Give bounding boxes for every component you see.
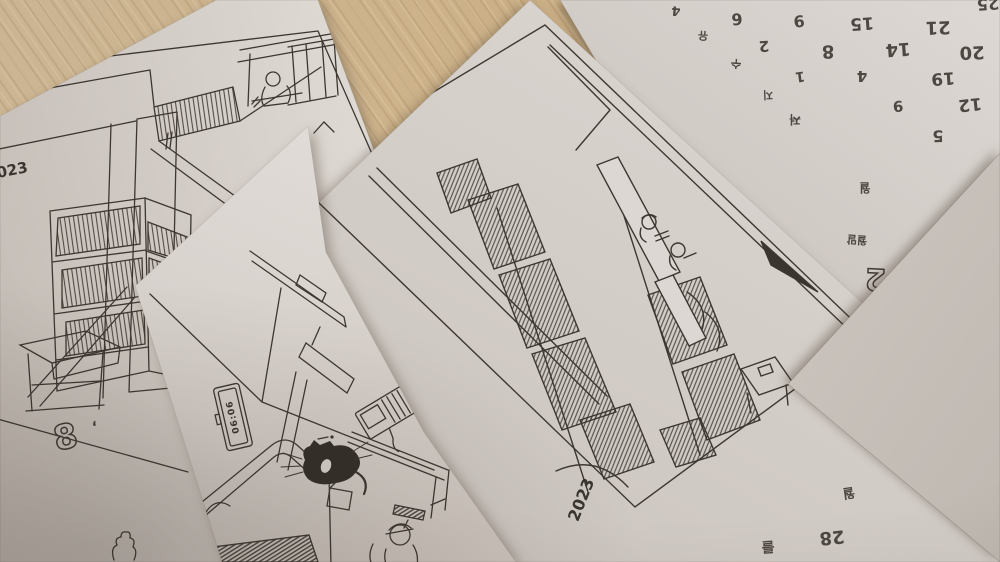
blank-paper-shape bbox=[788, 153, 1000, 562]
blank-corner-paper bbox=[0, 0, 1000, 562]
desk-photo: 2 469152125유281420수1419지912저5월월말 bbox=[0, 0, 1000, 562]
